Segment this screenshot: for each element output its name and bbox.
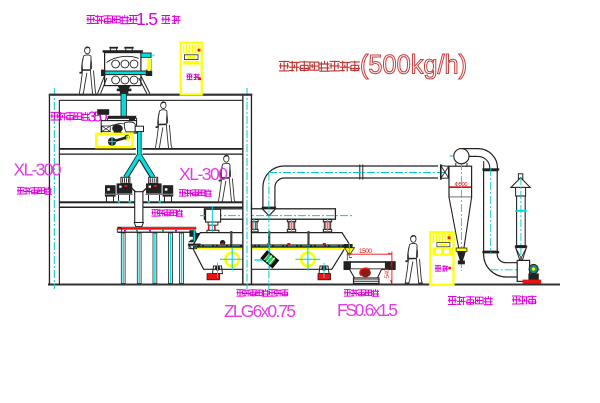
svg-text:ZLG6x0.75: ZLG6x0.75 (224, 301, 296, 321)
svg-text:540: 540 (384, 268, 391, 278)
svg-text:XL-300: XL-300 (179, 164, 228, 184)
svg-text:1500: 1500 (359, 248, 372, 255)
svg-text:(500kg/h): (500kg/h) (360, 50, 467, 80)
svg-text:XL-300: XL-300 (14, 160, 62, 180)
svg-text:1.5: 1.5 (136, 9, 158, 29)
svg-text:FS0.6x1.5: FS0.6x1.5 (337, 300, 398, 320)
